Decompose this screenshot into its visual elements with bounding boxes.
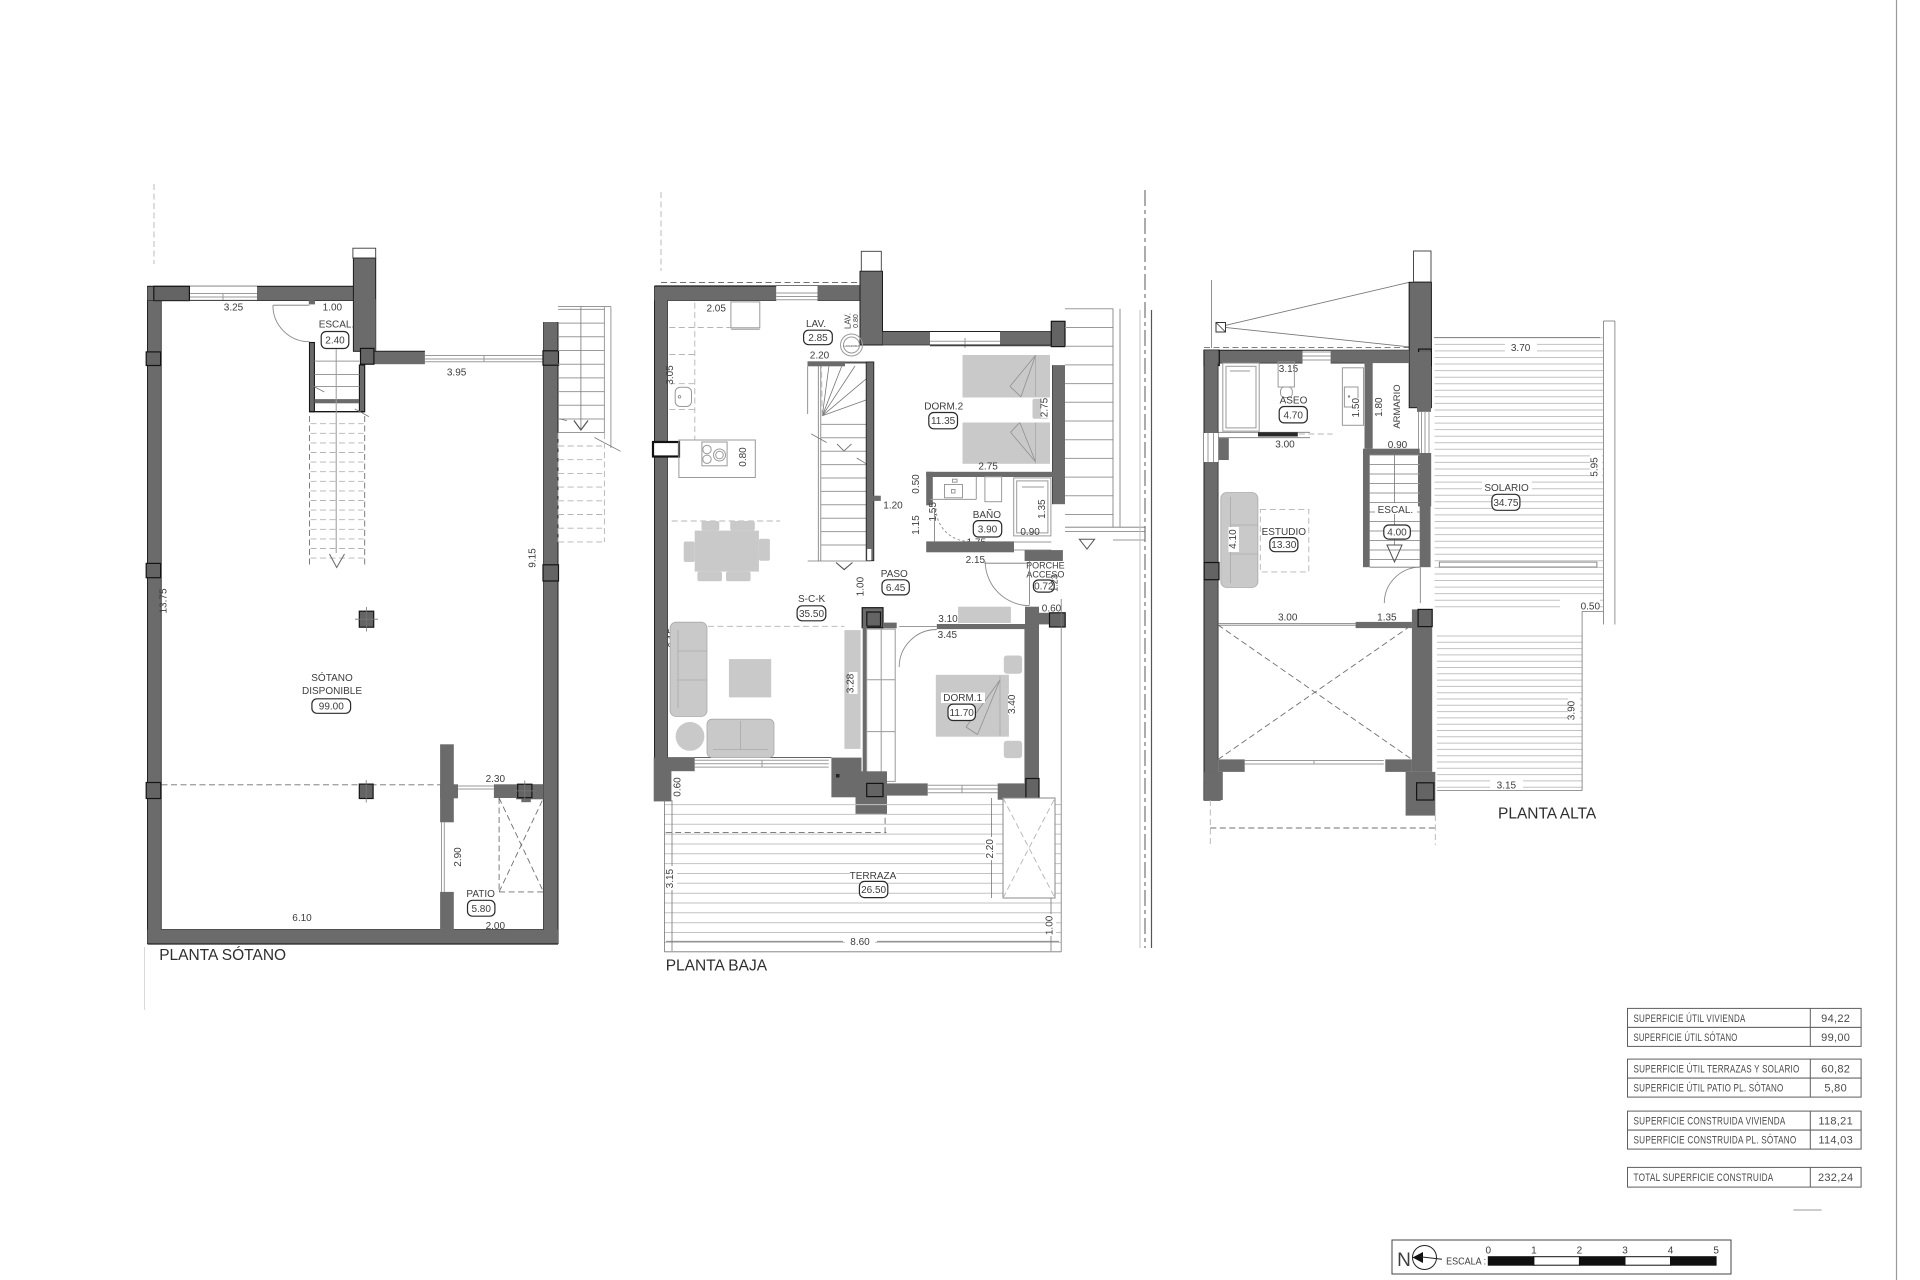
svg-text:SUPERFICIE ÚTIL SÓTANO: SUPERFICIE ÚTIL SÓTANO xyxy=(1634,1031,1738,1044)
svg-text:99,00: 99,00 xyxy=(1821,1032,1850,1044)
svg-text:ESCAL.: ESCAL. xyxy=(1378,505,1414,516)
svg-text:232,24: 232,24 xyxy=(1818,1172,1853,1184)
svg-text:2.00: 2.00 xyxy=(486,921,506,932)
svg-text:4.00: 4.00 xyxy=(1387,528,1407,539)
svg-text:13.75: 13.75 xyxy=(159,588,170,613)
svg-text:3.10: 3.10 xyxy=(938,614,958,625)
svg-text:1.00: 1.00 xyxy=(1044,915,1055,935)
svg-text:2.30: 2.30 xyxy=(486,774,506,785)
svg-text:6.10: 6.10 xyxy=(292,913,312,924)
svg-text:2.75: 2.75 xyxy=(1040,397,1051,417)
svg-text:TOTAL SUPERFICIE CONSTRUIDA: TOTAL SUPERFICIE CONSTRUIDA xyxy=(1634,1172,1774,1184)
svg-text:2.75: 2.75 xyxy=(978,462,998,473)
svg-text:2.20: 2.20 xyxy=(810,351,830,362)
svg-text:PLANTA ALTA: PLANTA ALTA xyxy=(1498,806,1597,823)
svg-text:ESCALA :: ESCALA : xyxy=(1446,1256,1486,1268)
svg-text:1.15: 1.15 xyxy=(911,515,922,535)
svg-text:11.35: 11.35 xyxy=(931,416,956,427)
svg-text:ARMARIO: ARMARIO xyxy=(1392,384,1403,428)
svg-text:3.95: 3.95 xyxy=(447,368,467,379)
svg-text:SUPERFICIE CONSTRUIDA PL. SÓTA: SUPERFICIE CONSTRUIDA PL. SÓTANO xyxy=(1634,1134,1797,1147)
svg-text:3.28: 3.28 xyxy=(846,673,857,693)
svg-text:11.70: 11.70 xyxy=(950,708,975,719)
svg-text:1.00: 1.00 xyxy=(323,303,343,314)
svg-text:SUPERFICIE ÚTIL TERRAZAS Y SOL: SUPERFICIE ÚTIL TERRAZAS Y SOLARIO xyxy=(1634,1063,1800,1076)
svg-text:SUPERFICIE CONSTRUIDA VIVIENDA: SUPERFICIE CONSTRUIDA VIVIENDA xyxy=(1634,1116,1786,1128)
svg-text:0: 0 xyxy=(1486,1246,1492,1257)
svg-text:1.50: 1.50 xyxy=(1351,398,1362,418)
svg-text:2.15: 2.15 xyxy=(966,555,986,566)
svg-text:ESTUDIO: ESTUDIO xyxy=(1262,527,1307,538)
svg-text:4.10: 4.10 xyxy=(1228,529,1239,549)
svg-text:5,80: 5,80 xyxy=(1824,1083,1847,1095)
svg-text:2.90: 2.90 xyxy=(453,847,464,867)
svg-text:2.20: 2.20 xyxy=(985,839,996,859)
svg-text:1.23: 1.23 xyxy=(1049,574,1059,592)
svg-text:2.85: 2.85 xyxy=(808,333,828,344)
svg-text:2: 2 xyxy=(1577,1246,1583,1257)
svg-text:S-C-K: S-C-K xyxy=(798,594,826,605)
svg-text:118,21: 118,21 xyxy=(1818,1116,1853,1128)
svg-text:3.15: 3.15 xyxy=(1497,781,1517,792)
svg-text:SUPERFICIE ÚTIL VIVIENDA: SUPERFICIE ÚTIL VIVIENDA xyxy=(1634,1012,1746,1025)
svg-text:99.00: 99.00 xyxy=(319,702,344,713)
svg-text:DORM.1: DORM.1 xyxy=(943,693,982,704)
svg-text:0.50: 0.50 xyxy=(911,474,922,494)
svg-text:2.40: 2.40 xyxy=(325,336,345,347)
svg-text:4.70: 4.70 xyxy=(1283,410,1303,421)
svg-text:PATIO: PATIO xyxy=(466,889,495,900)
svg-text:60,82: 60,82 xyxy=(1821,1064,1850,1076)
svg-text:8.60: 8.60 xyxy=(850,937,870,948)
svg-text:0.80: 0.80 xyxy=(853,314,860,328)
svg-text:3.25: 3.25 xyxy=(224,303,244,314)
svg-text:3.90: 3.90 xyxy=(1567,700,1578,720)
svg-text:3: 3 xyxy=(1622,1246,1628,1257)
svg-text:26.50: 26.50 xyxy=(861,885,886,896)
svg-text:PLANTA SÓTANO: PLANTA SÓTANO xyxy=(159,947,286,964)
svg-text:0.60: 0.60 xyxy=(672,777,683,797)
svg-text:1.20: 1.20 xyxy=(883,501,903,512)
svg-text:114,03: 114,03 xyxy=(1818,1135,1853,1147)
svg-text:LAV.: LAV. xyxy=(806,319,826,330)
svg-text:1.00: 1.00 xyxy=(856,576,867,596)
svg-text:34.75: 34.75 xyxy=(1493,498,1518,509)
svg-text:PLANTA BAJA: PLANTA BAJA xyxy=(666,958,768,975)
svg-text:3.70: 3.70 xyxy=(1511,343,1531,354)
svg-text:0.80: 0.80 xyxy=(738,447,749,467)
svg-text:5.80: 5.80 xyxy=(471,904,491,915)
svg-text:0.90: 0.90 xyxy=(1020,527,1040,538)
svg-text:1: 1 xyxy=(1531,1246,1537,1257)
svg-text:ESCAL.: ESCAL. xyxy=(319,320,355,331)
svg-text:3.05: 3.05 xyxy=(665,365,676,385)
svg-text:3.40: 3.40 xyxy=(1007,694,1018,714)
svg-text:6.45: 6.45 xyxy=(886,583,906,594)
svg-text:TERRAZA: TERRAZA xyxy=(850,871,897,882)
svg-text:3.15: 3.15 xyxy=(665,868,676,888)
svg-text:2.05: 2.05 xyxy=(706,304,726,315)
svg-text:4: 4 xyxy=(1668,1246,1674,1257)
svg-text:5: 5 xyxy=(1713,1246,1719,1257)
svg-text:3.00: 3.00 xyxy=(1275,440,1295,451)
svg-text:1.80: 1.80 xyxy=(1374,397,1385,417)
svg-text:PASO: PASO xyxy=(881,569,908,580)
svg-text:SÓTANO: SÓTANO xyxy=(311,671,353,684)
svg-text:9.15: 9.15 xyxy=(528,548,539,568)
svg-text:LAVADORA: LAVADORA xyxy=(844,344,860,348)
svg-text:DISPONIBLE: DISPONIBLE xyxy=(302,686,362,697)
svg-text:N: N xyxy=(1397,1250,1411,1271)
svg-text:1.35: 1.35 xyxy=(1037,499,1048,519)
svg-text:35.50: 35.50 xyxy=(799,609,824,620)
svg-text:DORM.2: DORM.2 xyxy=(924,402,963,413)
svg-text:3.15: 3.15 xyxy=(1279,364,1299,375)
svg-text:BAÑO: BAÑO xyxy=(973,508,1002,521)
svg-text:94,22: 94,22 xyxy=(1821,1013,1850,1025)
svg-text:5.95: 5.95 xyxy=(1590,457,1601,477)
svg-text:LAV.: LAV. xyxy=(844,313,853,329)
svg-text:3.00: 3.00 xyxy=(1278,612,1298,623)
svg-text:13.30: 13.30 xyxy=(1271,540,1296,551)
svg-text:SOLARIO: SOLARIO xyxy=(1484,483,1529,494)
svg-text:0.50: 0.50 xyxy=(1581,601,1601,612)
svg-text:3.45: 3.45 xyxy=(938,630,958,641)
svg-text:ASEO: ASEO xyxy=(1280,396,1308,407)
svg-text:SUPERFICIE ÚTIL PATIO PL. SÓTA: SUPERFICIE ÚTIL PATIO PL. SÓTANO xyxy=(1634,1082,1784,1095)
svg-text:1.35: 1.35 xyxy=(1377,612,1397,623)
svg-text:3.90: 3.90 xyxy=(978,524,998,535)
